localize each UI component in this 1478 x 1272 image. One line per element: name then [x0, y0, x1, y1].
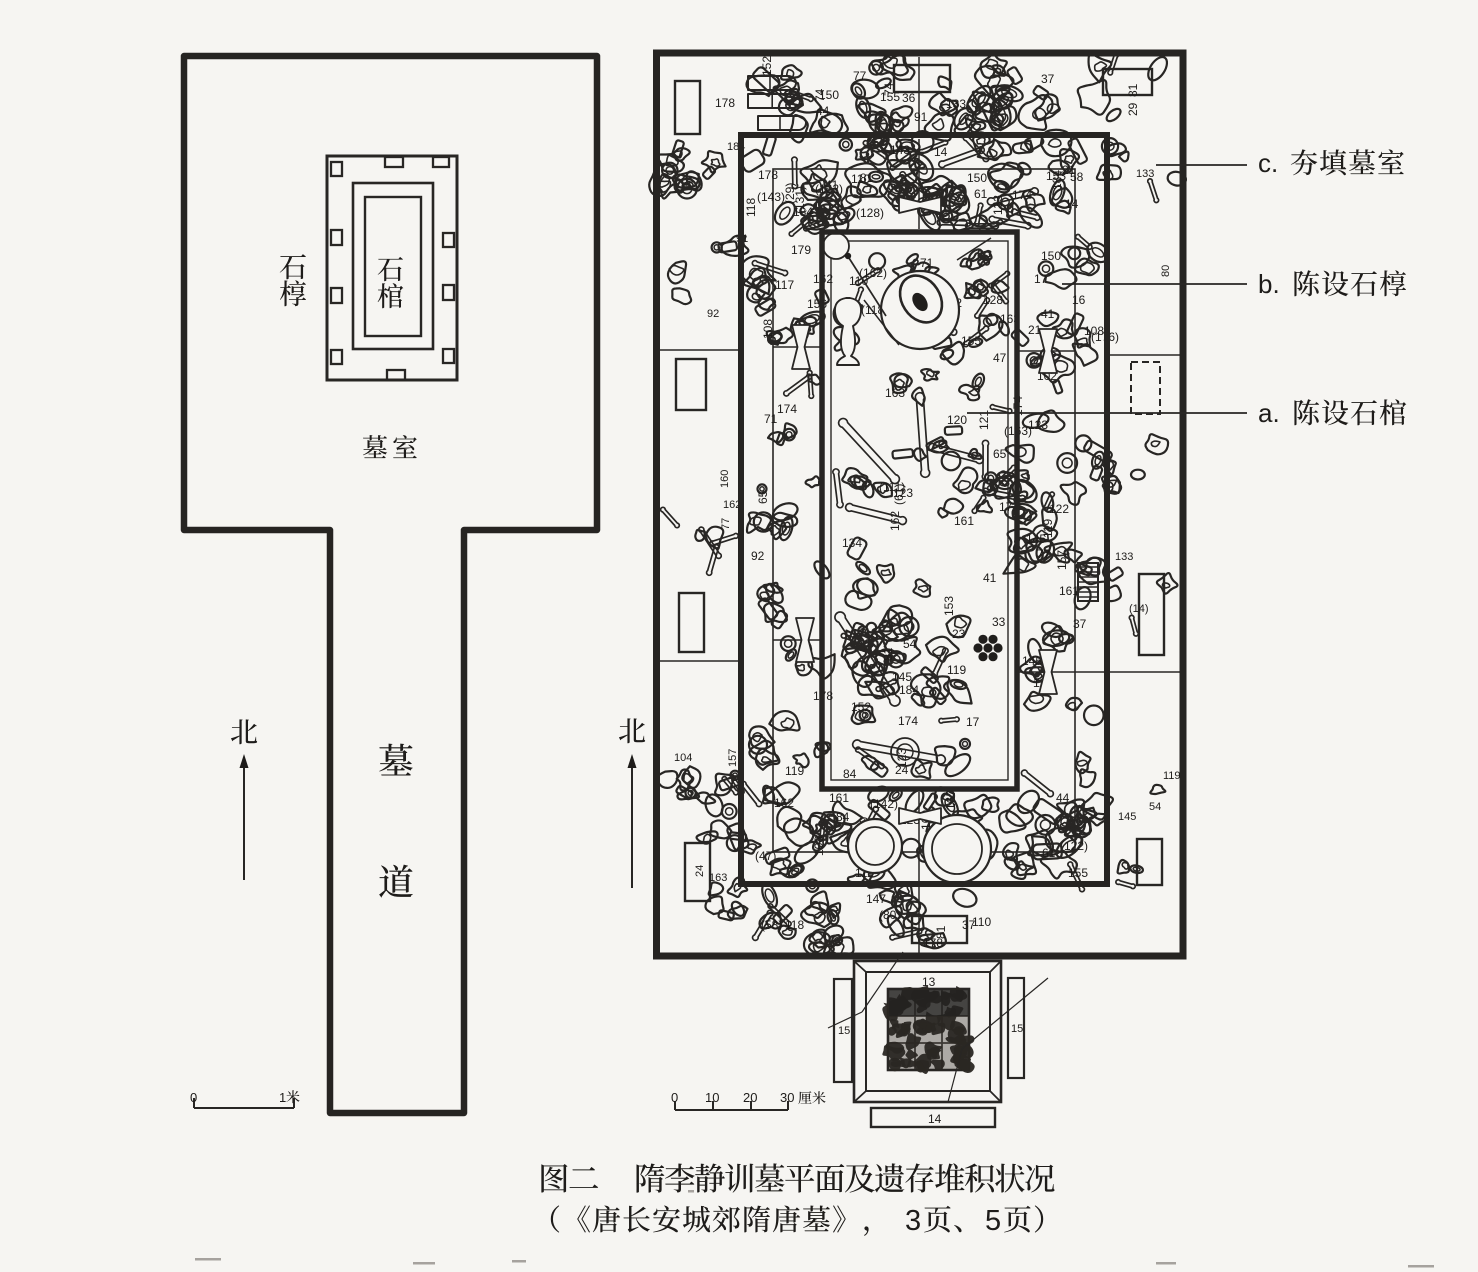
svg-text:61: 61: [974, 187, 988, 201]
svg-text:(80): (80): [879, 908, 900, 922]
svg-text:0: 0: [671, 1090, 678, 1105]
svg-text:77: 77: [853, 69, 867, 83]
svg-text:44: 44: [1056, 791, 1070, 805]
svg-text:133: 133: [991, 195, 1005, 215]
svg-text:178: 178: [758, 168, 778, 182]
svg-text:145: 145: [892, 670, 912, 684]
svg-text:120: 120: [947, 413, 967, 427]
svg-text:77: 77: [1037, 547, 1051, 561]
svg-text:155: 155: [1068, 866, 1088, 880]
svg-text:174: 174: [898, 714, 918, 728]
svg-text:184: 184: [899, 683, 919, 697]
svg-text:(14): (14): [1129, 603, 1149, 615]
svg-text:157: 157: [1055, 550, 1069, 570]
svg-text:(143): (143): [757, 190, 785, 204]
svg-text:21: 21: [1062, 163, 1076, 177]
svg-text:(162): (162): [859, 266, 887, 280]
svg-text:152: 152: [851, 700, 871, 714]
svg-text:161: 161: [1059, 584, 1079, 598]
svg-text:14: 14: [928, 1112, 942, 1126]
svg-text:17: 17: [966, 715, 980, 729]
svg-text:33: 33: [992, 615, 1006, 629]
svg-text:15: 15: [1011, 1023, 1023, 1035]
svg-text:178: 178: [923, 936, 943, 950]
svg-text:133: 133: [1136, 168, 1154, 180]
svg-text:71: 71: [764, 412, 778, 426]
svg-text:23: 23: [952, 627, 966, 641]
svg-text:84: 84: [836, 810, 850, 824]
svg-text:157: 157: [727, 749, 739, 767]
svg-text:150: 150: [1041, 249, 1061, 263]
svg-text:(58): (58): [761, 918, 782, 932]
svg-text:155: 155: [880, 90, 900, 104]
svg-text:54: 54: [1149, 801, 1161, 813]
svg-text:81: 81: [1126, 83, 1140, 97]
svg-text:(142): (142): [870, 797, 898, 811]
svg-text:174: 174: [777, 402, 797, 416]
svg-text:20: 20: [743, 1090, 757, 1105]
svg-text:37: 37: [1073, 617, 1087, 631]
svg-text:37: 37: [1041, 72, 1055, 86]
svg-text:71: 71: [920, 256, 934, 270]
svg-text:163: 163: [709, 872, 727, 884]
svg-text:92: 92: [707, 308, 719, 320]
svg-text:65: 65: [756, 490, 770, 504]
svg-text:54: 54: [903, 637, 917, 651]
svg-text:108: 108: [812, 836, 826, 856]
svg-text:108: 108: [761, 319, 775, 339]
svg-text:133: 133: [946, 97, 966, 111]
svg-text:84: 84: [843, 767, 857, 781]
svg-text:1: 1: [279, 1090, 286, 1105]
svg-text:41: 41: [983, 571, 997, 585]
svg-text:134: 134: [842, 536, 862, 550]
svg-text:104: 104: [674, 752, 692, 764]
svg-text:24: 24: [694, 865, 706, 877]
svg-text:128: 128: [983, 293, 1003, 307]
svg-text:163: 163: [885, 386, 905, 400]
svg-text:77: 77: [720, 518, 732, 530]
svg-text:5: 5: [985, 1205, 1001, 1237]
svg-text:143: 143: [890, 143, 910, 157]
svg-text:161: 161: [954, 514, 974, 528]
svg-text:122: 122: [1049, 502, 1069, 516]
svg-text:179: 179: [791, 243, 811, 257]
svg-text:0: 0: [190, 1090, 197, 1105]
svg-text:155: 155: [961, 334, 981, 348]
svg-text:74: 74: [813, 88, 827, 102]
svg-text:133: 133: [1115, 551, 1133, 563]
svg-text:c.: c.: [1258, 148, 1278, 178]
svg-text:145: 145: [1026, 532, 1046, 546]
svg-text:174: 174: [1012, 188, 1032, 202]
svg-text:14: 14: [934, 145, 948, 159]
svg-text:3: 3: [905, 1205, 921, 1237]
svg-text:167: 167: [944, 790, 958, 810]
svg-text:147: 147: [866, 892, 886, 906]
svg-text:80: 80: [1160, 265, 1172, 277]
svg-text:10: 10: [705, 1090, 719, 1105]
svg-text:153: 153: [942, 596, 956, 616]
svg-text:160: 160: [719, 470, 731, 488]
svg-text:118: 118: [785, 918, 804, 932]
svg-text:162: 162: [774, 796, 794, 810]
svg-text:92: 92: [751, 549, 765, 563]
svg-text:81: 81: [881, 647, 895, 661]
svg-text:178: 178: [715, 96, 735, 110]
svg-text:44: 44: [816, 104, 830, 118]
svg-text:152: 152: [760, 56, 774, 76]
svg-text:(29): (29): [783, 183, 797, 204]
svg-text:110: 110: [851, 172, 870, 186]
svg-text:13: 13: [922, 975, 936, 989]
svg-text:161: 161: [829, 791, 849, 805]
svg-text:117: 117: [775, 278, 794, 292]
svg-text:61: 61: [1042, 846, 1056, 860]
svg-text:119: 119: [947, 663, 966, 677]
svg-text:123: 123: [893, 486, 913, 500]
svg-text:29: 29: [1126, 102, 1140, 116]
svg-text:145: 145: [1118, 811, 1136, 823]
svg-text:36: 36: [902, 91, 916, 105]
svg-text:110: 110: [972, 915, 991, 929]
svg-text:118: 118: [744, 198, 758, 217]
svg-text:14: 14: [1065, 197, 1079, 211]
svg-text:65: 65: [993, 447, 1007, 461]
svg-text:a.: a.: [1258, 398, 1280, 428]
svg-text:b.: b.: [1258, 269, 1280, 299]
svg-text:(128): (128): [856, 206, 884, 220]
svg-text:41: 41: [1041, 307, 1055, 321]
svg-text:145: 145: [1022, 654, 1042, 668]
svg-text:30: 30: [780, 1090, 794, 1105]
svg-text:150: 150: [967, 171, 987, 185]
svg-text:47: 47: [993, 351, 1007, 365]
svg-text:17: 17: [1034, 272, 1048, 286]
svg-text:16: 16: [1072, 293, 1086, 307]
svg-text:119: 119: [785, 764, 804, 778]
svg-text:91: 91: [914, 110, 928, 124]
svg-text:119: 119: [1163, 770, 1181, 782]
svg-text:15: 15: [838, 1025, 850, 1037]
